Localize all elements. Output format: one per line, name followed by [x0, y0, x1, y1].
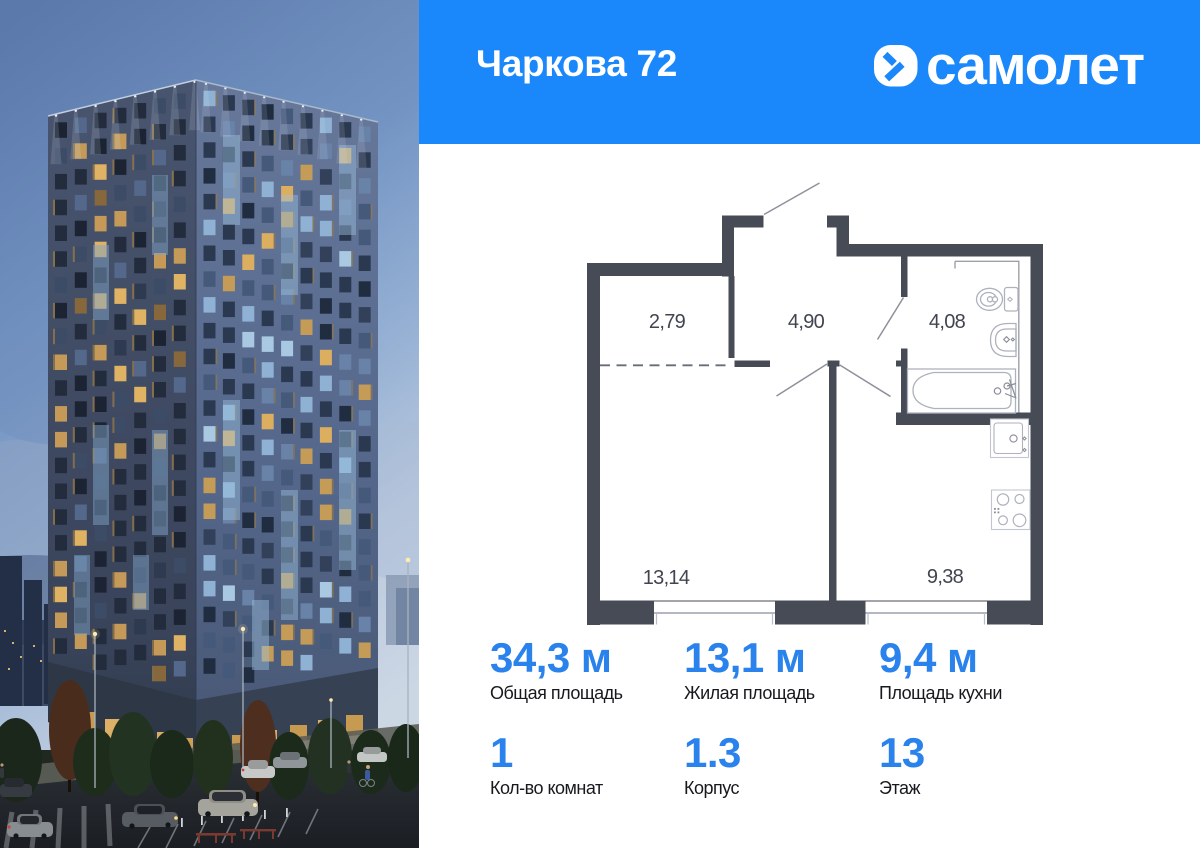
svg-text:самолет: самолет	[926, 45, 1144, 89]
svg-text:4,08: 4,08	[929, 311, 966, 333]
svg-text:13,14: 13,14	[643, 567, 690, 589]
svg-text:9,38: 9,38	[927, 566, 964, 588]
svg-text:4,90: 4,90	[788, 311, 825, 333]
svg-text:2,79: 2,79	[649, 311, 686, 333]
